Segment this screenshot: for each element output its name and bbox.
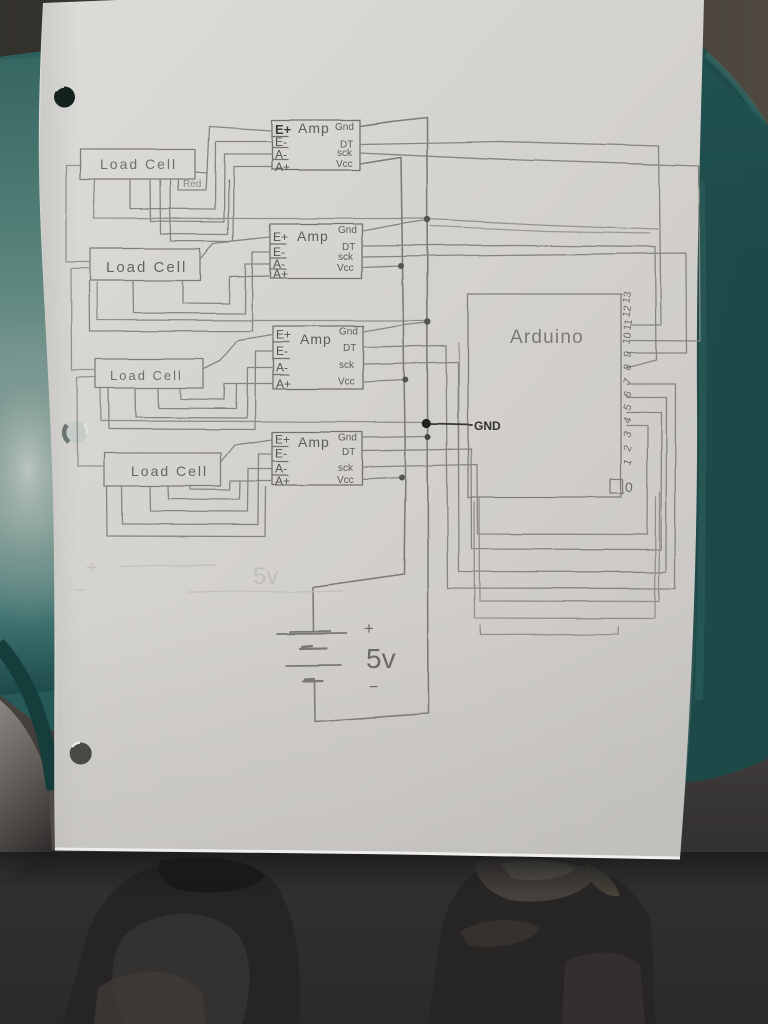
svg-text:A+: A+	[275, 474, 290, 488]
svg-text:Load Cell: Load Cell	[106, 259, 187, 276]
svg-text:−: −	[369, 679, 378, 696]
svg-text:Amp: Amp	[298, 434, 330, 450]
svg-text:sck: sck	[338, 463, 354, 474]
svg-text:A+: A+	[275, 160, 290, 174]
svg-text:Arduino: Arduino	[510, 327, 584, 348]
svg-text:Load Cell: Load Cell	[100, 156, 177, 172]
svg-text:Gnd: Gnd	[335, 122, 354, 133]
svg-text:Vcc: Vcc	[337, 263, 354, 274]
svg-text:Vcc: Vcc	[338, 377, 355, 388]
svg-text:Vcc: Vcc	[336, 159, 353, 170]
svg-text:12: 12	[620, 304, 634, 318]
svg-text:E+: E+	[275, 433, 290, 447]
svg-text:Load Cell: Load Cell	[131, 463, 208, 479]
svg-text:Load Cell: Load Cell	[110, 368, 183, 383]
svg-text:E+: E+	[273, 230, 288, 244]
svg-text:Gnd: Gnd	[338, 225, 357, 236]
svg-text:Amp: Amp	[300, 331, 332, 347]
svg-text:E-: E-	[276, 344, 288, 358]
svg-text:GND: GND	[474, 419, 501, 433]
svg-text:DT: DT	[343, 343, 356, 354]
svg-text:11: 11	[621, 318, 635, 331]
svg-text:A+: A+	[273, 267, 288, 281]
svg-text:0: 0	[625, 479, 633, 495]
svg-text:sck: sck	[337, 148, 353, 159]
svg-text:10: 10	[620, 331, 634, 345]
svg-text:A-: A-	[276, 361, 288, 375]
svg-text:Vcc: Vcc	[337, 475, 354, 486]
svg-text:Gnd: Gnd	[339, 327, 358, 338]
svg-text:DT: DT	[342, 447, 355, 458]
svg-text:Gnd: Gnd	[338, 433, 357, 444]
svg-text:Amp: Amp	[298, 120, 330, 136]
svg-text:A+: A+	[276, 377, 291, 391]
svg-text:sck: sck	[338, 252, 354, 263]
svg-text:Amp: Amp	[297, 228, 329, 244]
svg-text:E-: E-	[275, 447, 287, 461]
svg-text:5v: 5v	[366, 643, 396, 674]
svg-text:sck: sck	[339, 360, 355, 371]
svg-text:+: +	[364, 619, 374, 638]
svg-text:5v: 5v	[253, 563, 278, 590]
svg-text:13: 13	[620, 290, 634, 304]
svg-text:E+: E+	[276, 328, 291, 342]
svg-text:Red: Red	[183, 179, 201, 190]
